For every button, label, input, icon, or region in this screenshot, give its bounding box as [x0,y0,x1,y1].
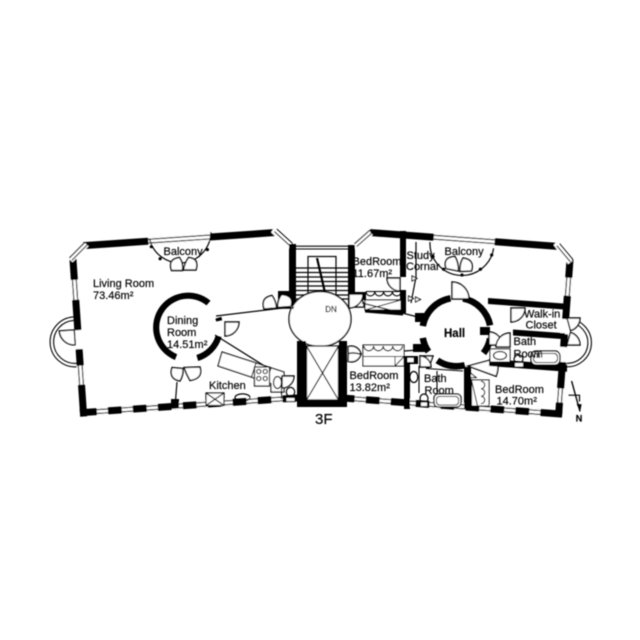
svg-text:N: N [576,414,583,424]
svg-text:Balcony: Balcony [164,246,204,258]
svg-text:Room: Room [425,385,454,397]
svg-text:BedRoom: BedRoom [353,256,402,268]
svg-text:DN: DN [325,305,337,314]
svg-text:Bath: Bath [514,336,537,348]
svg-text:14.51m²: 14.51m² [167,339,208,351]
svg-text:BedRoom: BedRoom [495,384,544,396]
svg-text:Bath: Bath [424,373,447,385]
svg-text:Room: Room [514,349,543,361]
svg-text:Balcony: Balcony [445,246,485,258]
svg-text:14.70m²: 14.70m² [497,396,538,408]
svg-text:BedRoom: BedRoom [350,370,399,382]
svg-text:Cornar: Cornar [406,261,440,273]
svg-text:Living Room: Living Room [93,278,154,290]
svg-text:Dining: Dining [167,315,198,327]
svg-text:Closet: Closet [526,320,557,332]
svg-text:3F: 3F [315,411,333,428]
svg-text:Hall: Hall [444,328,465,340]
svg-text:13.82m²: 13.82m² [350,382,391,394]
svg-text:Kitchen: Kitchen [209,380,246,392]
svg-text:11.67m²: 11.67m² [353,268,393,280]
svg-text:73.46m²: 73.46m² [93,290,134,302]
svg-text:Room: Room [167,327,196,339]
